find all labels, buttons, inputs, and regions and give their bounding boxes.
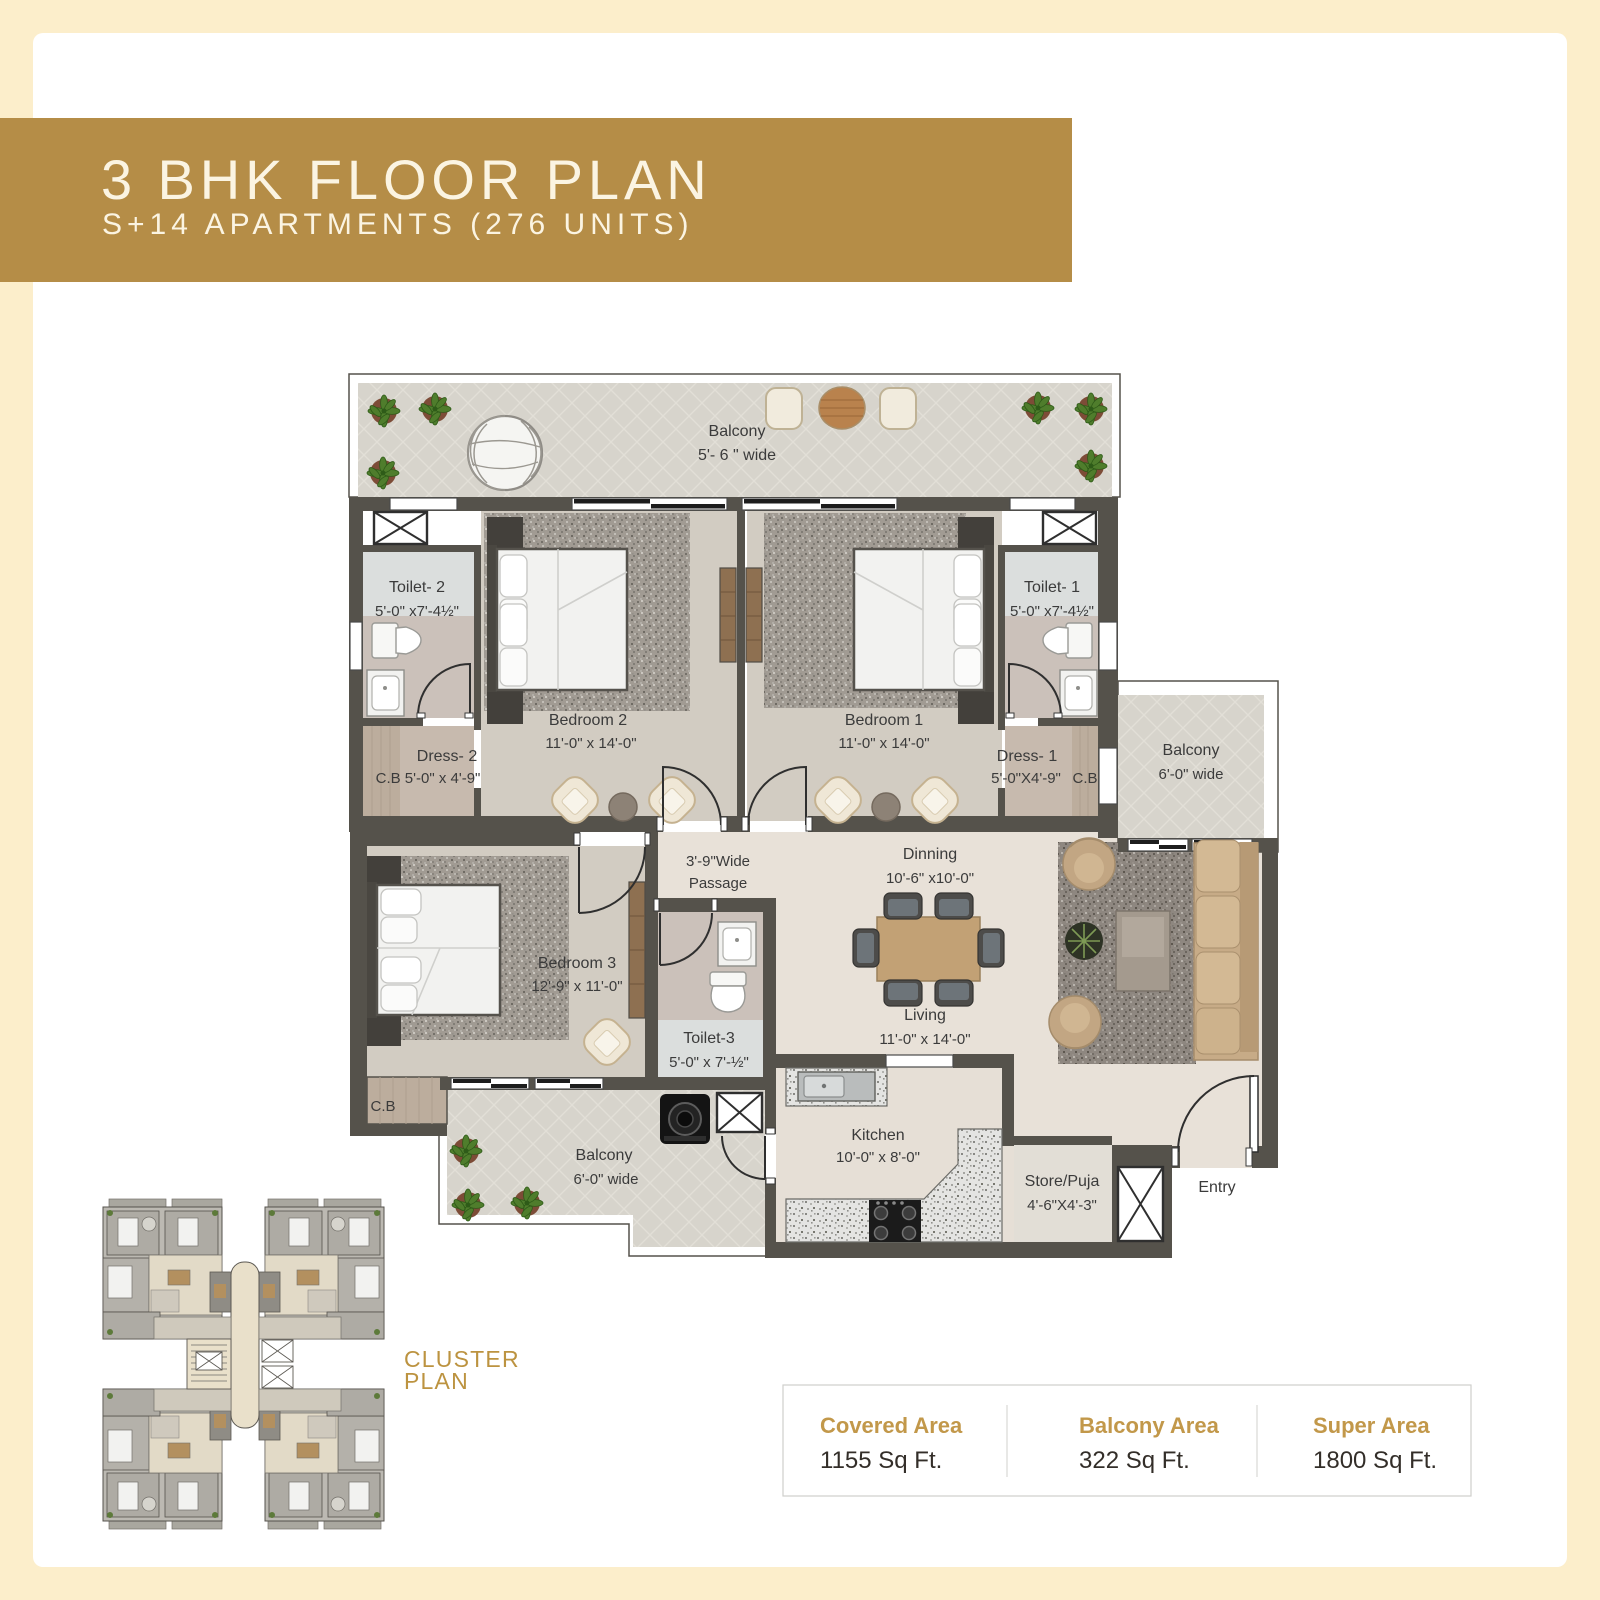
svg-text:Living: Living (904, 1007, 946, 1024)
svg-text:Store/Puja: Store/Puja (1025, 1173, 1100, 1190)
svg-text:10'-6" x10'-0": 10'-6" x10'-0" (886, 870, 974, 887)
svg-text:1155 Sq Ft.: 1155 Sq Ft. (820, 1447, 942, 1474)
svg-text:Entry: Entry (1198, 1179, 1235, 1196)
svg-text:322 Sq Ft.: 322 Sq Ft. (1079, 1447, 1190, 1474)
svg-text:Kitchen: Kitchen (851, 1127, 904, 1144)
svg-text:5'-0"X4'-9": 5'-0"X4'-9" (991, 770, 1061, 787)
svg-text:C.B: C.B (1072, 770, 1097, 787)
svg-text:Toilet- 1: Toilet- 1 (1024, 579, 1080, 596)
svg-text:Bedroom 2: Bedroom 2 (549, 712, 627, 729)
svg-text:5'- 6 " wide: 5'- 6 " wide (698, 447, 776, 464)
svg-text:Balcony: Balcony (709, 423, 766, 440)
svg-text:6'-0" wide: 6'-0" wide (574, 1171, 639, 1188)
svg-text:C.B: C.B (370, 1098, 395, 1115)
svg-text:5'-0" x7'-4½": 5'-0" x7'-4½" (375, 603, 459, 620)
svg-text:6'-0" wide: 6'-0" wide (1159, 766, 1224, 783)
svg-text:Toilet-3: Toilet-3 (683, 1030, 735, 1047)
svg-text:Dinning: Dinning (903, 846, 957, 863)
svg-text:1800 Sq Ft.: 1800 Sq Ft. (1313, 1447, 1437, 1474)
svg-text:11'-0" x 14'-0": 11'-0" x 14'-0" (838, 735, 929, 752)
svg-text:3'-9"Wide: 3'-9"Wide (686, 853, 750, 870)
svg-text:11'-0" x 14'-0": 11'-0" x 14'-0" (879, 1031, 970, 1048)
svg-text:Passage: Passage (689, 875, 747, 892)
svg-text:5'-0" x 7'-½": 5'-0" x 7'-½" (669, 1054, 749, 1071)
svg-text:5'-0" x7'-4½": 5'-0" x7'-4½" (1010, 603, 1094, 620)
svg-text:Dress- 2: Dress- 2 (417, 748, 478, 765)
svg-text:Balcony Area: Balcony Area (1079, 1413, 1220, 1438)
svg-text:12'-9" x 11'-0": 12'-9" x 11'-0" (531, 978, 622, 995)
svg-text:Bedroom 3: Bedroom 3 (538, 955, 616, 972)
svg-text:Bedroom 1: Bedroom 1 (845, 712, 923, 729)
svg-text:Balcony: Balcony (1163, 742, 1220, 759)
svg-text:4'-6"X4'-3": 4'-6"X4'-3" (1027, 1197, 1097, 1214)
svg-text:Toilet- 2: Toilet- 2 (389, 579, 445, 596)
svg-text:C.B 5'-0" x 4'-9": C.B 5'-0" x 4'-9" (376, 770, 481, 787)
svg-text:10'-0" x 8'-0": 10'-0" x 8'-0" (836, 1149, 920, 1166)
svg-text:Covered Area: Covered Area (820, 1413, 963, 1438)
svg-text:PLAN: PLAN (404, 1368, 469, 1394)
svg-text:Super Area: Super Area (1313, 1413, 1430, 1438)
svg-text:Balcony: Balcony (576, 1147, 633, 1164)
svg-text:11'-0" x 14'-0": 11'-0" x 14'-0" (545, 735, 636, 752)
svg-text:S+14 APARTMENTS (276 UNITS): S+14 APARTMENTS (276 UNITS) (102, 208, 694, 241)
svg-text:Dress- 1: Dress- 1 (997, 748, 1058, 765)
svg-text:3 BHK FLOOR PLAN: 3 BHK FLOOR PLAN (101, 148, 712, 211)
